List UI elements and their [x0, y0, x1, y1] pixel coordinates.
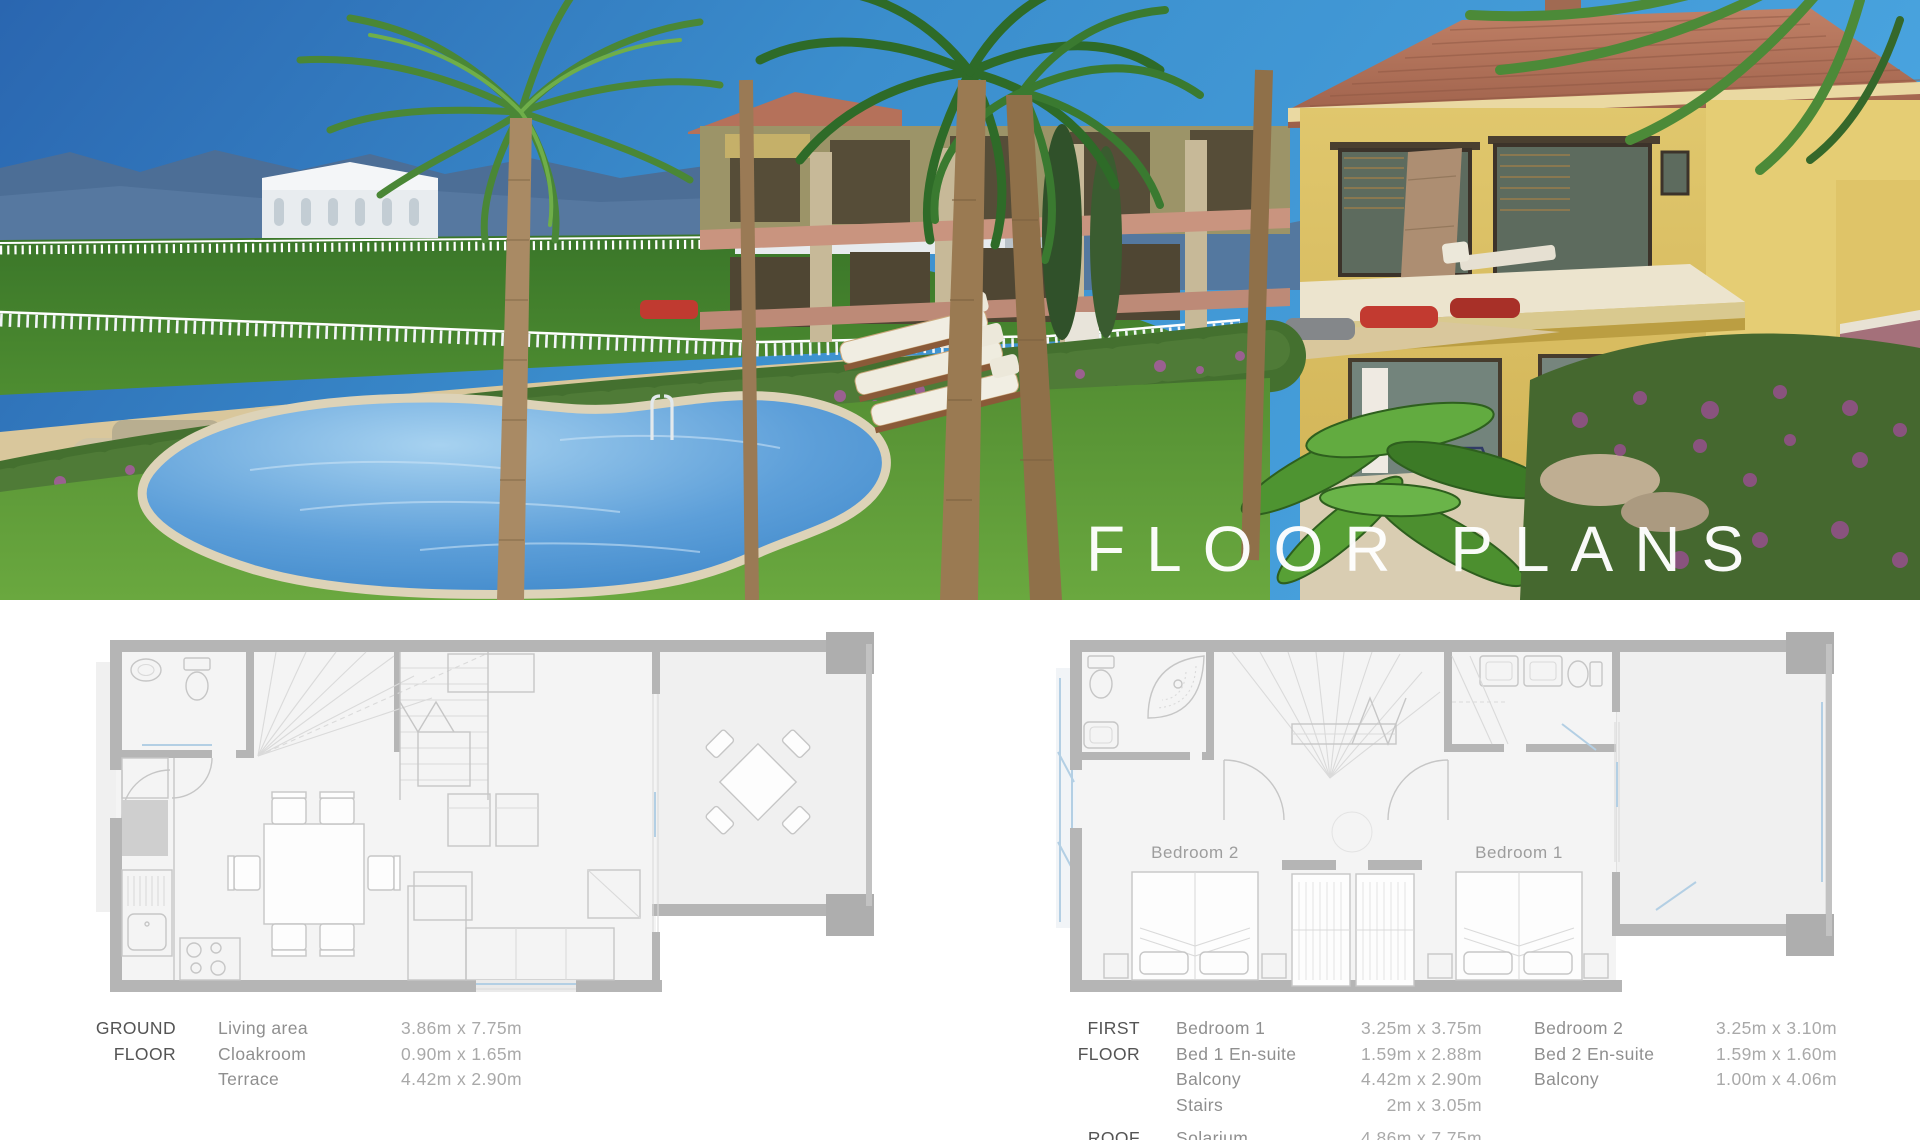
first-floor-table-name: FIRST FLOOR	[1046, 1016, 1140, 1067]
ground-floor-plan	[96, 632, 886, 1007]
room-label: Bedroom 2	[1534, 1016, 1654, 1042]
first-floor-plan: Bedroom 2 Bedroom 1	[1056, 632, 1846, 1007]
room-label: Balcony	[1534, 1067, 1654, 1093]
roof-table-name: ROOF	[1046, 1126, 1140, 1140]
right-balcony	[1616, 644, 1830, 934]
first-floor-room-labels-col1: Bedroom 1 Bed 1 En-suite Balcony Stairs	[1176, 1016, 1296, 1118]
first-floor-room-labels-col2: Bedroom 2 Bed 2 En-suite Balcony	[1534, 1016, 1654, 1093]
room-label: Terrace	[218, 1067, 308, 1093]
first-floor-dimensions-col2: 3.25m x 3.10m 1.59m x 1.60m 1.00m x 4.06…	[1658, 1016, 1837, 1093]
room-label: Solarium	[1176, 1126, 1248, 1140]
page-title: FLOOR PLANS	[1086, 512, 1765, 586]
ground-floor-room-labels: Living area Cloakroom Terrace	[218, 1016, 308, 1093]
room-dimension: 0.90m x 1.65m	[330, 1042, 522, 1068]
room-label: Stairs	[1176, 1093, 1296, 1119]
room-dimension: 4.42m x 2.90m	[330, 1067, 522, 1093]
room-dimension: 3.25m x 3.10m	[1658, 1016, 1837, 1042]
room-dimension: 1.00m x 4.06m	[1658, 1067, 1837, 1093]
bedroom-2-label: Bedroom 2	[1151, 843, 1239, 862]
floor-name-line: FIRST	[1046, 1016, 1140, 1042]
room-label: Cloakroom	[218, 1042, 308, 1068]
room-dimension: 3.25m x 3.75m	[1330, 1016, 1482, 1042]
room-label: Bedroom 1	[1176, 1016, 1296, 1042]
villa-render-illustration	[0, 0, 1920, 600]
room-dimension: 4.86m x 7.75m	[1330, 1126, 1482, 1140]
ground-floor-dimensions: 3.86m x 7.75m 0.90m x 1.65m 4.42m x 2.90…	[330, 1016, 522, 1093]
room-dimension: 4.42m x 2.90m	[1330, 1067, 1482, 1093]
room-label: Balcony	[1176, 1067, 1296, 1093]
room-label: Bed 1 En-suite	[1176, 1042, 1296, 1068]
bed-2	[1104, 872, 1286, 980]
floor-name-line: FLOOR	[66, 1042, 176, 1068]
roof-room-label: Solarium	[1176, 1126, 1248, 1140]
first-floor-dimensions-col1: 3.25m x 3.75m 1.59m x 2.88m 4.42m x 2.90…	[1330, 1016, 1482, 1118]
ground-floor-table-name: GROUND FLOOR	[66, 1016, 176, 1067]
floor-name-line: ROOF	[1046, 1126, 1140, 1140]
room-dimension: 2m x 3.05m	[1330, 1093, 1482, 1119]
room-dimension: 3.86m x 7.75m	[330, 1016, 522, 1042]
room-label: Bed 2 En-suite	[1534, 1042, 1654, 1068]
room-dimension: 1.59m x 1.60m	[1658, 1042, 1837, 1068]
floor-name-line: FLOOR	[1046, 1042, 1140, 1068]
room-dimension: 1.59m x 2.88m	[1330, 1042, 1482, 1068]
ground-interior	[116, 640, 656, 992]
room-label: Living area	[218, 1016, 308, 1042]
hero-photo: FLOOR PLANS	[0, 0, 1920, 600]
floor-name-line: GROUND	[66, 1016, 176, 1042]
bedroom-1-label: Bedroom 1	[1475, 843, 1563, 862]
brochure-page: FLOOR PLANS	[0, 0, 1920, 1140]
roof-dimension: 4.86m x 7.75m	[1330, 1126, 1482, 1140]
